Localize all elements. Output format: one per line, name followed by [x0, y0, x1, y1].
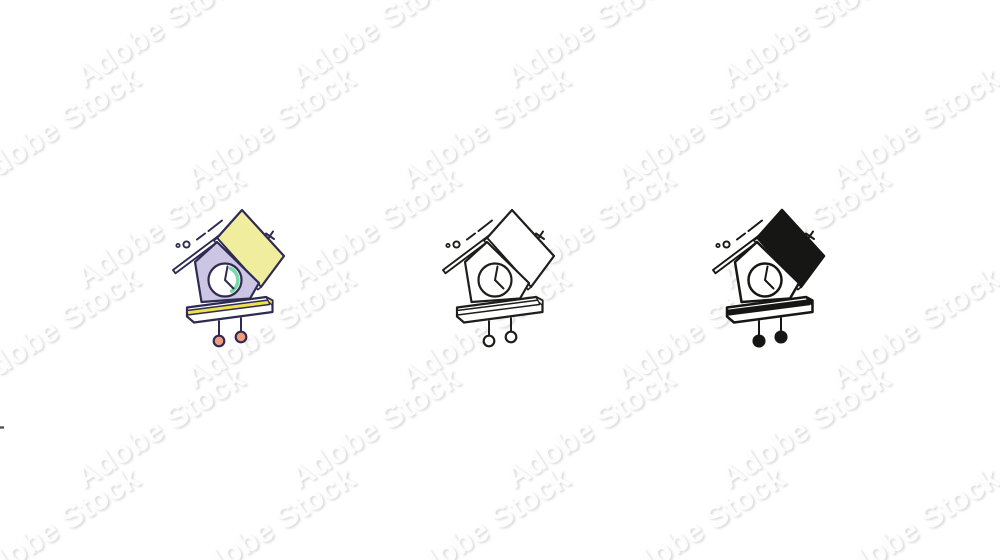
adobe-stock-watermark: Adobe Stock — [393, 60, 576, 196]
cuckoo-clock-icon-outline — [440, 205, 555, 320]
adobe-stock-watermark: Adobe Stock — [823, 60, 1000, 196]
adobe-stock-watermark: Adobe Stock — [823, 460, 1000, 560]
cuckoo-clock-icon-glyph — [710, 205, 825, 320]
adobe-stock-watermark: Adobe Stock — [498, 0, 681, 95]
attribution-label: Adobe Stock | #1505696298 — [0, 297, 5, 557]
adobe-stock-watermark: Adobe Stock — [283, 0, 466, 95]
adobe-stock-watermark: Adobe Stock — [0, 60, 147, 196]
adobe-stock-watermark: Adobe Stock — [608, 460, 791, 560]
adobe-stock-watermark: Adobe Stock — [0, 260, 147, 396]
stock-preview-stage: Adobe StockAdobe StockAdobe StockAdobe S… — [0, 0, 1000, 560]
adobe-stock-watermark: Adobe Stock — [68, 0, 251, 95]
adobe-stock-watermark: Adobe Stock — [713, 360, 896, 496]
adobe-stock-watermark: Adobe Stock — [68, 360, 251, 496]
adobe-stock-watermark: Adobe Stock — [283, 360, 466, 496]
adobe-stock-watermark: Adobe Stock — [498, 360, 681, 496]
adobe-stock-watermark: Adobe Stock — [178, 60, 361, 196]
adobe-stock-watermark: Adobe Stock — [178, 460, 361, 560]
adobe-stock-watermark: Adobe Stock — [393, 460, 576, 560]
adobe-stock-watermark: Adobe Stock — [0, 460, 147, 560]
adobe-stock-watermark: Adobe Stock — [713, 0, 896, 95]
adobe-stock-watermark: Adobe Stock — [823, 260, 1000, 396]
adobe-stock-watermark: Adobe Stock — [608, 60, 791, 196]
cuckoo-clock-icon-colored — [170, 205, 285, 320]
